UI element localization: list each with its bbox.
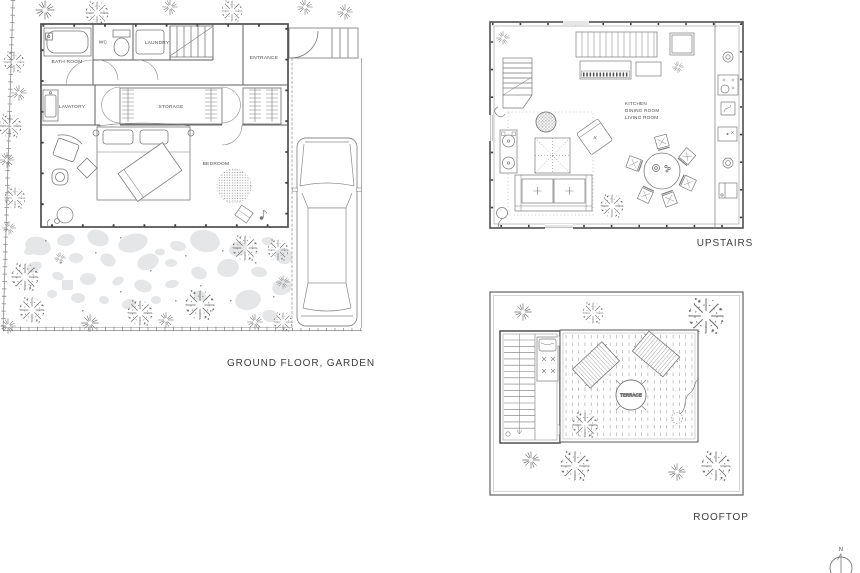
floor-plan-sheet: BATH ROOM WC LAUNDRY ENTRANCE LAVATORY S…: [0, 0, 860, 573]
terrace-table: TERRACE: [616, 380, 646, 410]
room-label-living: LIVING ROOM: [625, 115, 658, 120]
ground-floor-plan: BATH ROOM WC LAUNDRY ENTRANCE LAVATORY S…: [0, 0, 400, 375]
room-label-bedroom: BEDROOM: [203, 161, 230, 167]
room-label-bath: BATH ROOM: [52, 59, 83, 65]
room-label-terrace: TERRACE: [620, 393, 642, 398]
bench-icon: [537, 337, 558, 381]
rattan-ottoman-icon: [536, 112, 556, 132]
compass-north-label: N: [839, 547, 843, 553]
car-icon: [293, 138, 362, 326]
caption-upstairs: UPSTAIRS: [645, 238, 805, 249]
bedroom-plant-icon: [217, 169, 251, 203]
room-label-lavatory: LAVATORY: [59, 104, 86, 110]
room-label-dining: DINING ROOM: [625, 108, 659, 113]
room-label-wc: WC: [99, 40, 108, 46]
room-label-laundry: LAUNDRY: [145, 40, 170, 46]
coffee-table-icon: [535, 138, 570, 173]
caption-ground-floor: GROUND FLOOR, GARDEN: [180, 358, 422, 369]
bed-icon: [93, 123, 194, 201]
room-label-entrance: ENTRANCE: [250, 55, 278, 61]
room-label-storage: STORAGE: [158, 104, 183, 110]
room-label-kitchen: KITCHEN: [625, 101, 647, 106]
garden-stones: [23, 227, 295, 324]
compass-icon: N: [822, 541, 860, 573]
piano-icon: [580, 61, 631, 79]
sofa-icon: [515, 175, 592, 211]
audio-unit-icon: [500, 130, 517, 173]
dining-table-icon: [644, 153, 680, 189]
caption-rooftop: ROOFTOP: [645, 512, 797, 523]
rooftop-plan: TERRACE: [485, 283, 755, 513]
upstairs-plan: KITCHEN DINING ROOM LIVING ROOM: [485, 15, 755, 247]
